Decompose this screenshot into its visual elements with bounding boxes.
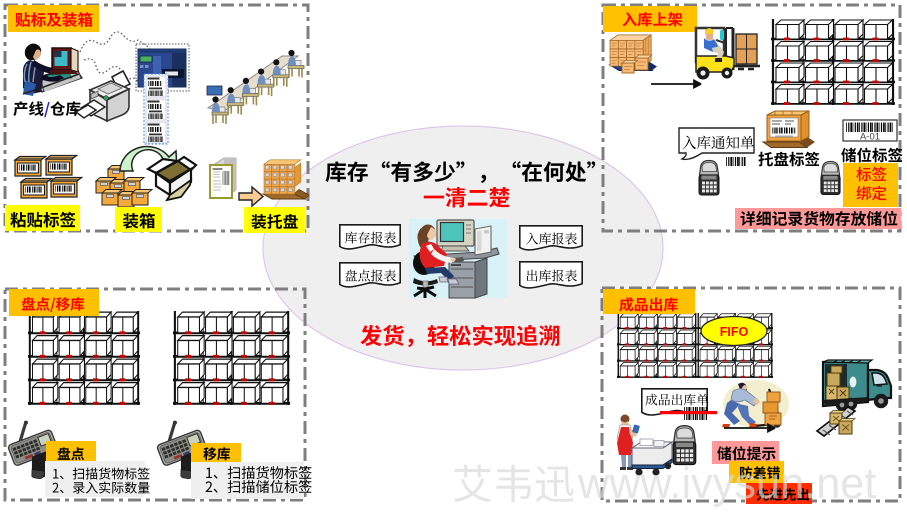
svg-text:FIFO: FIFO <box>720 325 749 339</box>
svg-text:www.ivysun.net: www.ivysun.net <box>577 460 876 508</box>
svg-text:A-01: A-01 <box>860 132 880 143</box>
